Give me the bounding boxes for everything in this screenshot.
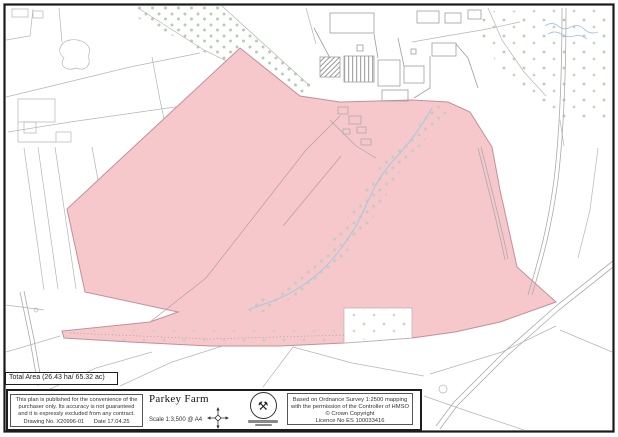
scale-label: Scale 1:3,500 @ A4: [149, 417, 202, 423]
total-area-box: Total Area (26.43 ha/ 65.32 ac): [5, 372, 118, 385]
disclaimer-line: This plan is published for the convenien…: [11, 397, 142, 404]
os-line: Licence No ES 100033416: [288, 418, 412, 425]
os-line: Based on Ordnance Survey 1:2500 mapping: [288, 397, 412, 404]
total-area-label: Total Area (26.43 ha/ 65.32 ac): [9, 374, 105, 381]
estate-agent-logo: ⚒: [241, 391, 285, 426]
drawing-number: Drawing No. X20996-01: [23, 419, 84, 426]
north-compass-icon: [207, 407, 229, 429]
title-block-band: This plan is published for the convenien…: [6, 389, 422, 431]
hammers-glyph: ⚒: [258, 400, 269, 412]
drawing-date: Date 17.04.25: [94, 419, 130, 426]
plan-title: Parkey Farm: [149, 393, 209, 405]
logo-caption-greeked: [255, 424, 272, 426]
disclaimer-drawing-row: Drawing No. X20996-01 Date 17.04.25: [11, 419, 142, 426]
logo-caption-greeked: [248, 420, 278, 422]
disclaimer-line: and it is expressly excluded from any co…: [11, 411, 142, 418]
os-line: © Crown Copyright: [288, 411, 412, 418]
os-attribution-box: Based on Ordnance Survey 1:2500 mapping …: [287, 393, 413, 425]
plan-page: Total Area (26.43 ha/ 65.32 ac) This pla…: [0, 0, 618, 437]
crossed-hammers-icon: ⚒: [250, 392, 277, 419]
disclaimer-box: This plan is published for the convenien…: [10, 394, 143, 427]
disclaimer-line: purchaser only. Its accuracy is not guar…: [11, 404, 142, 411]
os-line: with the permission of the Controller of…: [288, 404, 412, 411]
excluded-parcel: [344, 308, 412, 343]
